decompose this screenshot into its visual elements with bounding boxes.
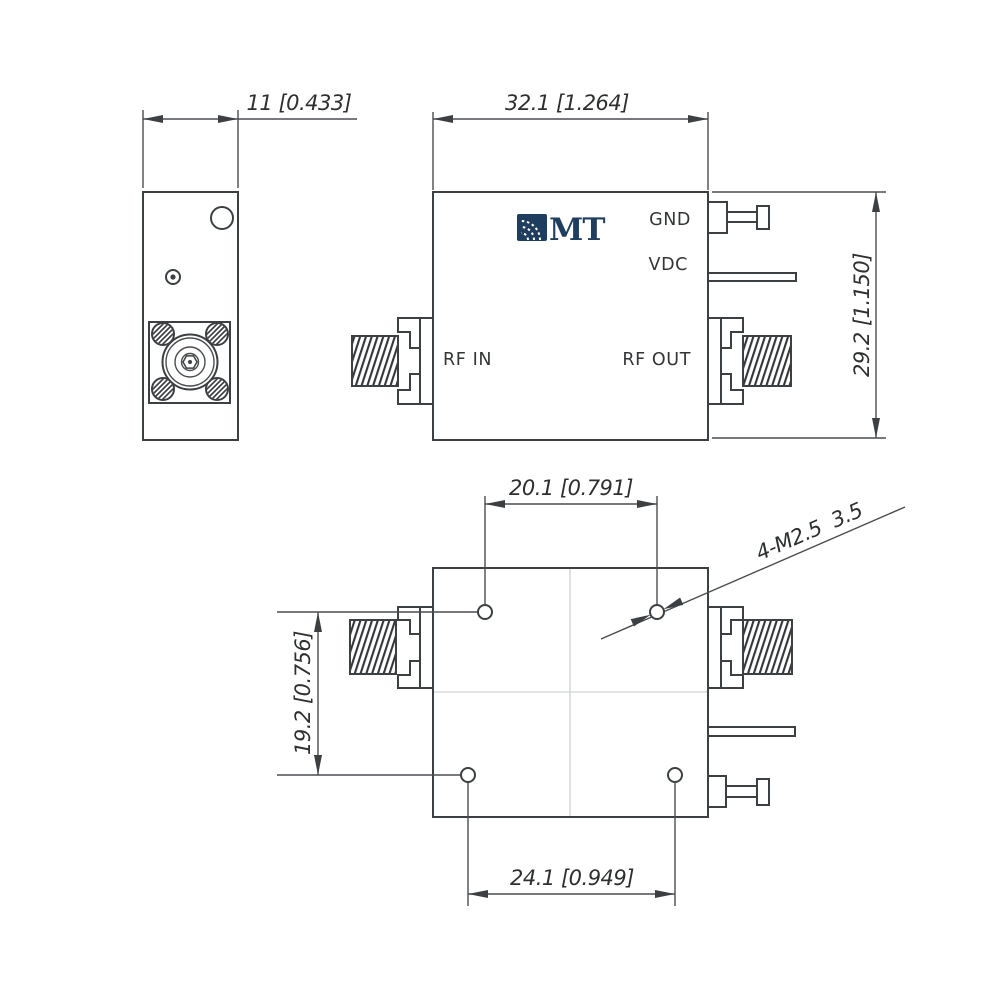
sma-thread-barrel <box>743 336 791 386</box>
mounting-hole <box>461 768 475 782</box>
label-rf-in: RF IN <box>443 350 492 370</box>
dim-hole-span-side-text: 19.2 [0.756] <box>291 631 315 755</box>
dim-hole-span-bottom-text: 24.1 [0.949] <box>510 866 634 890</box>
logo-text: MT <box>549 212 605 248</box>
vdc-pin <box>708 273 796 281</box>
mounting-hole <box>650 605 664 619</box>
vdc-pin-bottom <box>708 727 795 736</box>
dimension-body-width: 32.1 [1.264] <box>433 91 708 190</box>
dimension-hole-span-bottom: 24.1 [0.949] <box>468 783 675 906</box>
rf-out-connector-bottom <box>708 607 792 688</box>
gnd-terminal <box>708 202 769 233</box>
sma-thread-barrel <box>743 620 792 674</box>
mounting-hole <box>668 768 682 782</box>
sma-thread-barrel <box>350 620 396 674</box>
bottom-view <box>350 568 795 817</box>
sma-thread-barrel <box>352 336 398 386</box>
coax-connector-face <box>163 335 218 390</box>
vdc-pin-center <box>170 274 175 279</box>
label-vdc: VDC <box>649 255 688 275</box>
dim-body-width-text: 32.1 [1.264] <box>505 91 629 115</box>
label-rf-out: RF OUT <box>622 350 691 370</box>
rf-in-connector-bottom <box>350 607 433 688</box>
mounting-holes <box>461 605 682 782</box>
dimension-hole-span-top: 20.1 [0.791] <box>485 476 657 604</box>
rf-out-connector <box>708 318 791 404</box>
dim-hole-span-top-text: 20.1 [0.791] <box>509 476 633 500</box>
gnd-terminal-bottom <box>708 776 769 807</box>
side-view <box>143 192 238 440</box>
mechanical-drawing-page: MT GND VDC RF IN RF OUT <box>0 0 1000 1000</box>
gnd-feedthrough-hole <box>211 207 233 229</box>
dimension-side-thickness: 11 [0.433] <box>143 91 357 188</box>
label-gnd: GND <box>649 210 691 230</box>
mounting-hole <box>478 605 492 619</box>
outline-drawing: MT GND VDC RF IN RF OUT <box>0 0 1000 1000</box>
logo-mark-icon <box>517 214 547 241</box>
rf-in-connector <box>352 318 433 404</box>
dim-body-height-text: 29.2 [1.150] <box>850 253 874 377</box>
front-view: MT GND VDC RF IN RF OUT <box>352 192 796 440</box>
dim-side-thickness-text: 11 [0.433] <box>247 91 352 115</box>
